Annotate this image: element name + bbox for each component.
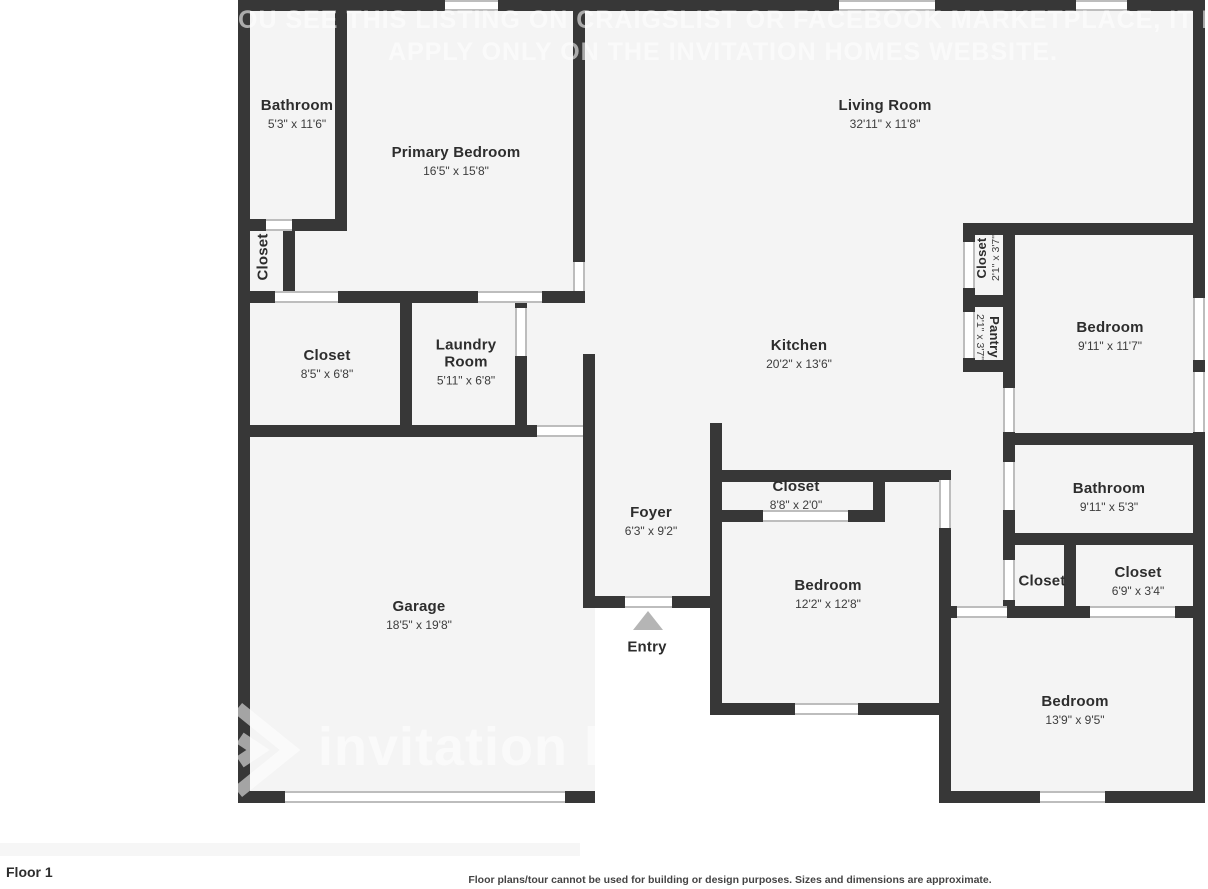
footer-band	[0, 843, 580, 856]
room-label-bathroom-primary: Bathroom 5'3" x 11'6"	[261, 97, 333, 131]
window-or-door-marker	[537, 425, 583, 437]
wall-segment	[1003, 433, 1205, 445]
fraud-warning-watermark: OU SEE THIS LISTING ON CRAIGSLIST OR FAC…	[238, 6, 1208, 67]
room-label-closet-bedroom-south: Closet 8'8" x 2'0"	[770, 478, 822, 512]
window-or-door-marker	[275, 291, 338, 303]
room-label-foyer: Foyer 6'3" x 9'2"	[625, 504, 677, 538]
wall-segment	[238, 425, 537, 437]
wall-segment	[710, 423, 722, 715]
wall-segment	[1003, 533, 1205, 545]
room-label-bedroom-south: Bedroom 12'2" x 12'8"	[794, 577, 861, 611]
room-label-bathroom-east: Bathroom 9'11" x 5'3"	[1073, 480, 1145, 514]
wall-segment	[858, 703, 951, 715]
wall-segment	[1175, 606, 1205, 618]
window-or-door-marker	[478, 291, 542, 303]
window-or-door-marker	[515, 308, 527, 356]
room-label-closet-hall-east: Closet	[1018, 573, 1065, 590]
wall-segment	[542, 291, 585, 303]
window-or-door-marker	[1193, 372, 1205, 432]
wall-segment	[710, 470, 951, 482]
room-label-pantry: Pantry 2'1" x 3'7"	[974, 314, 1002, 360]
entry-arrow-icon	[633, 611, 663, 630]
floorplan-canvas: Bathroom 5'3" x 11'6" Primary Bedroom 16…	[0, 0, 1208, 889]
window-or-door-marker	[1003, 388, 1015, 432]
wall-segment	[1007, 606, 1090, 618]
window-or-door-marker	[266, 219, 292, 231]
fraud-warning-line2: APPLY ONLY ON THE INVITATION HOMES WEBSI…	[238, 38, 1208, 67]
wall-segment	[238, 0, 250, 803]
room-label-entry: Entry	[627, 639, 666, 656]
disclaimer-text: Floor plans/tour cannot be used for buil…	[430, 874, 1030, 886]
window-or-door-marker	[1003, 560, 1015, 600]
window-or-door-marker	[1090, 606, 1175, 618]
room-label-closet-east: Closet 6'9" x 3'4"	[1112, 564, 1164, 598]
wall-segment	[238, 291, 275, 303]
window-or-door-marker	[1040, 791, 1105, 803]
wall-segment	[238, 219, 266, 231]
room-label-closet-right: Closet 2'1" x 3'7"	[974, 235, 1002, 281]
wall-segment	[583, 596, 625, 608]
window-or-door-marker	[285, 791, 565, 803]
wall-segment	[1003, 545, 1015, 560]
invitation-homes-watermark-text: invitation ho	[318, 716, 652, 778]
wall-segment	[292, 219, 347, 231]
room-label-garage: Garage 18'5" x 19'8"	[386, 598, 452, 632]
wall-segment	[400, 291, 412, 437]
fraud-warning-line1: OU SEE THIS LISTING ON CRAIGSLIST OR FAC…	[238, 6, 1208, 35]
window-or-door-marker	[1003, 462, 1015, 510]
invitation-homes-logo-icon	[230, 700, 306, 805]
wall-segment	[945, 606, 957, 618]
wall-segment	[1003, 223, 1015, 388]
wall-segment	[939, 528, 951, 803]
room-label-bedroom-ne: Bedroom 9'11" x 11'7"	[1076, 319, 1143, 353]
wall-segment	[672, 596, 722, 608]
floorplan-page: Bathroom 5'3" x 11'6" Primary Bedroom 16…	[0, 0, 1208, 889]
room-label-closet-main: Closet 8'5" x 6'8"	[301, 347, 353, 381]
wall-segment	[710, 703, 795, 715]
window-or-door-marker	[795, 703, 858, 715]
room-label-living-room: Living Room 32'11" x 11'8"	[838, 97, 931, 131]
wall-segment	[722, 510, 763, 522]
window-or-door-marker	[957, 606, 1007, 618]
room-label-closet-hall-left: Closet	[255, 233, 272, 280]
window-or-door-marker	[939, 480, 951, 528]
window-or-door-marker	[1193, 298, 1205, 360]
outside-area-south	[710, 715, 945, 803]
wall-segment	[583, 354, 595, 608]
room-label-laundry-room: Laundry Room 5'11" x 6'8"	[416, 336, 516, 387]
wall-segment	[848, 510, 885, 522]
window-or-door-marker	[573, 262, 585, 291]
room-label-kitchen: Kitchen 20'2" x 13'6"	[766, 337, 832, 371]
window-or-door-marker	[625, 596, 672, 608]
room-label-bedroom-se: Bedroom 13'9" x 9'5"	[1041, 693, 1108, 727]
room-label-primary-bedroom: Primary Bedroom 16'5" x 15'8"	[392, 144, 521, 178]
wall-segment	[963, 223, 1205, 235]
wall-segment	[939, 472, 951, 480]
floor-label: Floor 1	[6, 864, 53, 880]
